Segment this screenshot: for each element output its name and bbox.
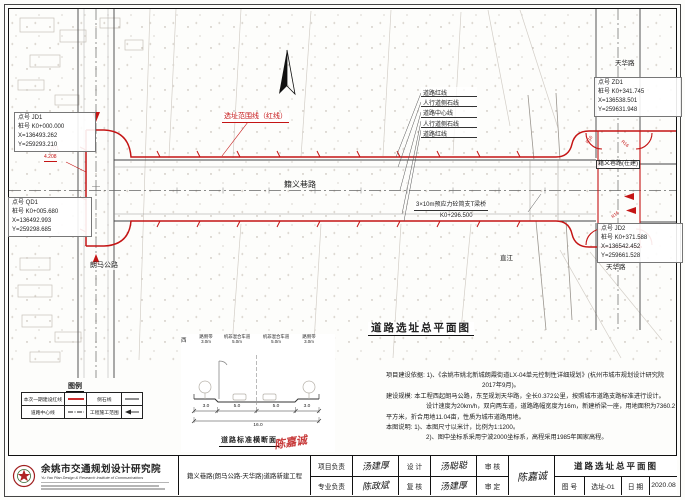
legend-sample-redline <box>64 393 87 405</box>
cross-section-title: 道路标准横断面 <box>219 435 279 447</box>
segment-width: 5.0m <box>217 339 257 344</box>
tianhua-road-label-top: 天华路 <box>615 60 635 67</box>
note-line: 本图说明: 1)、本图尺寸以米计，比例为1:1200。 <box>386 423 680 433</box>
road-line-label-stack: 道路红线 人行道侧石线 道路中心线 人行道侧石线 道路红线 <box>421 87 477 138</box>
point-x: X=136538.501 <box>598 97 678 106</box>
signature: 汤建厚 <box>362 458 390 473</box>
project-name: 籍义巷路(朗马公路-天华路)道路新建工程 <box>187 471 302 480</box>
signature: 陈政斌 <box>362 478 390 493</box>
west-direction-label: 西 <box>181 336 187 344</box>
drawing-no-label: 图 号 <box>554 476 584 496</box>
river-label: 直江 <box>500 255 513 262</box>
legend-box: 本次一期建设红线 侧石线 道路中心线 工程施工范围 <box>21 392 143 419</box>
legend-label: 侧石线 <box>86 393 121 405</box>
point-x: X=136542.452 <box>601 243 679 252</box>
signature-cell: 汤建厚 <box>352 456 398 476</box>
plan-title: 道路选址总平面图 <box>368 322 474 336</box>
legend-sample-range-arrow <box>121 406 142 418</box>
legend-label: 工程施工范围 <box>86 406 121 418</box>
institute-text: 余姚市交通规划设计研究院 Yu Yao Plan Design & Resear… <box>41 461 169 490</box>
legend-sample-centerline <box>64 406 87 418</box>
point-box-qd1: 点号 QD1 桩号 K0+005.680 X=136492.993 Y=2592… <box>8 197 92 237</box>
point-id: 点号 ZD1 <box>598 79 678 88</box>
field-label: 项目负责 <box>310 456 352 476</box>
signature-cell: 陈政斌 <box>352 476 398 496</box>
point-y: Y=259298.685 <box>12 226 88 235</box>
date-label: 日 期 <box>621 476 649 496</box>
main-road-label: 籍义巷路 <box>284 180 316 189</box>
cross-section-drawing <box>181 347 335 425</box>
institute-name-cn: 余姚市交通规划设计研究院 <box>41 461 169 475</box>
point-id: 点号 JD2 <box>601 225 679 234</box>
signature-cell: 汤建厚 <box>430 476 476 496</box>
line-label: 道路红线 <box>421 128 477 138</box>
point-id: 点号 QD1 <box>12 199 88 208</box>
tianhua-road-label-bottom: 天华路 <box>606 264 626 271</box>
cross-section: 西 路侧带 3.0m 机非混合车道 5.0m 机非混合车道 5.0m 路侧带 3… <box>181 334 335 452</box>
point-box-zd1: 点号 ZD1 桩号 K0+341.745 X=136538.501 Y=2596… <box>594 77 682 117</box>
project-name-cell: 籍义巷路(朗马公路-天华路)道路新建工程 <box>178 456 310 495</box>
note-line: 设计速度为20km/h，双向两车道，道路路幅宽度为16m，新建桥梁一座，用地面积… <box>386 402 680 412</box>
point-y: Y=259293.210 <box>18 141 92 150</box>
line-label: 道路中心线 <box>421 107 477 117</box>
segment-width: 5.0m <box>256 339 296 344</box>
drawing-sheet: 选址范围线（红线） 道路红线 人行道侧石线 道路中心线 人行道侧石线 道路红线 … <box>0 0 685 500</box>
field-label: 审 核 <box>476 456 508 476</box>
line-label: 人行道侧石线 <box>421 97 477 107</box>
bridge-chainage: K0+296.500 <box>440 213 473 220</box>
road-under-construction-label: 籍义巷路(在建) <box>596 160 640 169</box>
point-chainage: 桩号 K0+371.588 <box>601 234 679 243</box>
point-x: X=136492.993 <box>12 217 88 226</box>
point-box-jd2: 点号 JD2 桩号 K0+371.588 X=136542.452 Y=2596… <box>597 223 683 263</box>
certification-line <box>41 482 169 484</box>
point-chainage: 桩号 K0+341.745 <box>598 88 678 97</box>
drawing-no-value: 选址-01 <box>584 476 621 496</box>
drawing-title-cell: 道路选址总平面图 <box>554 456 677 476</box>
point-y: Y=259661.528 <box>601 252 679 261</box>
line-label: 道路红线 <box>421 87 477 97</box>
field-label: 专业负责 <box>310 476 352 496</box>
institute-name-en: Yu Yao Plan Design & Research Institute … <box>41 476 169 480</box>
legend-label: 道路中心线 <box>22 406 64 418</box>
point-x: X=136493.262 <box>18 132 92 141</box>
institute-cell: 余姚市交通规划设计研究院 Yu Yao Plan Design & Resear… <box>8 456 178 495</box>
legend-label: 本次一期建设红线 <box>22 393 64 405</box>
legend-sample-curbline <box>121 393 142 405</box>
point-id: 点号 JD1 <box>18 114 92 123</box>
field-label: 审 定 <box>476 476 508 496</box>
note-line: 2017年9月)。 <box>386 381 680 391</box>
dim-total: 16.0 <box>248 423 268 428</box>
signature-cell-span: 陈嘉诚 <box>508 456 554 495</box>
jd1-elevation: 4.208 <box>44 155 57 162</box>
signature: 汤聪聪 <box>440 458 468 473</box>
certification-line <box>41 485 159 487</box>
point-chainage: 桩号 K0+000.000 <box>18 123 92 132</box>
note-line: 建设规模: 本工程西起朗马公路，东至规划天华路，全长0.372公里，按照城市道路… <box>386 392 680 402</box>
red-boundary-label: 选址范围线（红线） <box>222 113 289 123</box>
dim-value: 5.0 <box>229 404 245 409</box>
dim-value: 3.0 <box>198 404 214 409</box>
note-line: 2)、图中坐标系采用宁波2000坐标系，高程采用1985年国家高程。 <box>386 433 680 443</box>
note-line: 项目建设依据: 1)、《余姚市姚北新城朗霞街道LX-04单元控制性详细规划》(杭… <box>386 371 680 381</box>
point-y: Y=259631.948 <box>598 106 678 115</box>
signature: 汤建厚 <box>440 478 468 493</box>
signature-cell: 汤聪聪 <box>430 456 476 476</box>
drawing-title: 道路选址总平面图 <box>574 460 658 472</box>
bridge-label: 3×10m预应力砼简支T梁桥 <box>414 202 488 211</box>
langma-road-label: 朗马公路 <box>90 262 118 270</box>
date-value: 2020.08 <box>649 476 677 496</box>
legend-title: 图例 <box>66 381 84 392</box>
dim-value: 3.0 <box>299 404 315 409</box>
field-label: 复 核 <box>398 476 430 496</box>
point-box-jd1: 点号 JD1 桩号 K0+000.000 X=136493.262 Y=2592… <box>14 112 96 152</box>
field-label: 设 计 <box>398 456 430 476</box>
dim-value: 5.0 <box>268 404 284 409</box>
certification-line <box>41 488 165 490</box>
institute-logo-icon <box>12 464 36 488</box>
segment-width: 3.0m <box>291 339 327 344</box>
point-chainage: 桩号 K0+005.680 <box>12 208 88 217</box>
note-line: 平方米，折合用地11.04亩，性质为城市道路用地。 <box>386 413 680 423</box>
notes-block: 项目建设依据: 1)、《余姚市姚北新城朗霞街道LX-04单元控制性详细规划》(杭… <box>386 371 680 444</box>
line-label: 人行道侧石线 <box>421 118 477 128</box>
title-block: 余姚市交通规划设计研究院 Yu Yao Plan Design & Resear… <box>8 455 677 495</box>
signature: 陈嘉诚 <box>516 467 547 484</box>
